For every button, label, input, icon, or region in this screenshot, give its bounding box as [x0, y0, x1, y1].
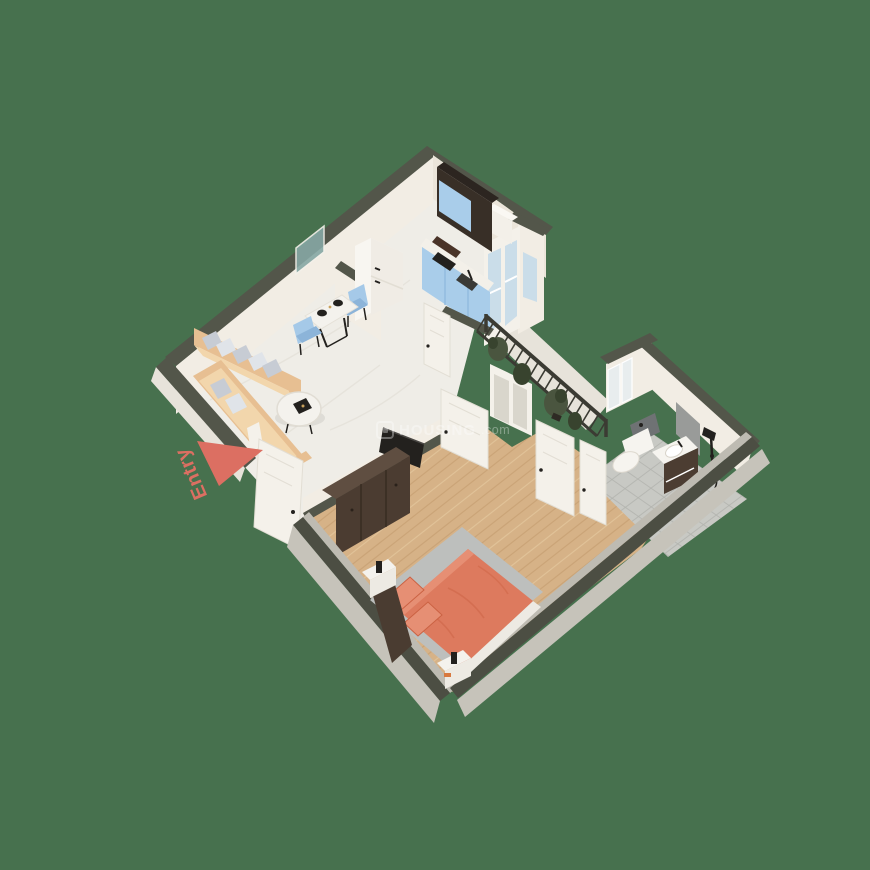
door-bathroom	[580, 440, 606, 525]
door-handle	[582, 488, 585, 491]
door-handle	[444, 430, 448, 434]
plate	[333, 300, 343, 307]
plate	[317, 310, 327, 317]
door-handle	[539, 468, 543, 472]
floor-plan-stage: HOUSING .com Entry	[0, 0, 870, 870]
door-hall-1	[424, 303, 450, 377]
door-handle	[291, 510, 295, 514]
floor-plan-svg	[0, 0, 870, 870]
book	[444, 673, 451, 677]
door-handle	[426, 344, 429, 347]
